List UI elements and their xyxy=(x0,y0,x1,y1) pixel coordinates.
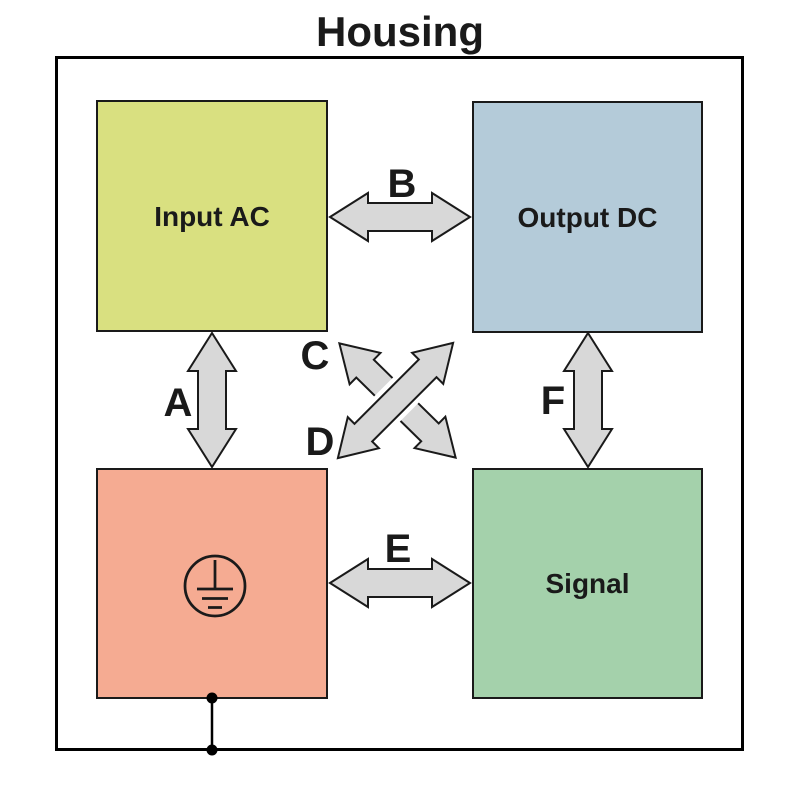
node-ground xyxy=(97,469,327,698)
arrow-label-b: B xyxy=(388,162,417,206)
arrow-label-f: F xyxy=(541,379,565,423)
diagram-title: Housing xyxy=(316,8,484,55)
diagram-canvas: Housing Input AC Output DC Signal xyxy=(0,0,800,800)
node-signal-label: Signal xyxy=(545,568,629,599)
arrow-label-c: C xyxy=(301,334,330,378)
ground-junction-dot-bottom xyxy=(207,745,218,756)
node-input-ac-label: Input AC xyxy=(154,201,270,232)
arrow-label-d: D xyxy=(306,420,335,464)
arrow-label-e: E xyxy=(385,527,412,571)
ground-junction-dot-top xyxy=(207,693,218,704)
node-output-dc-label: Output DC xyxy=(518,202,658,233)
arrow-label-a: A xyxy=(164,381,193,425)
housing-diagram: Housing Input AC Output DC Signal xyxy=(0,0,800,800)
